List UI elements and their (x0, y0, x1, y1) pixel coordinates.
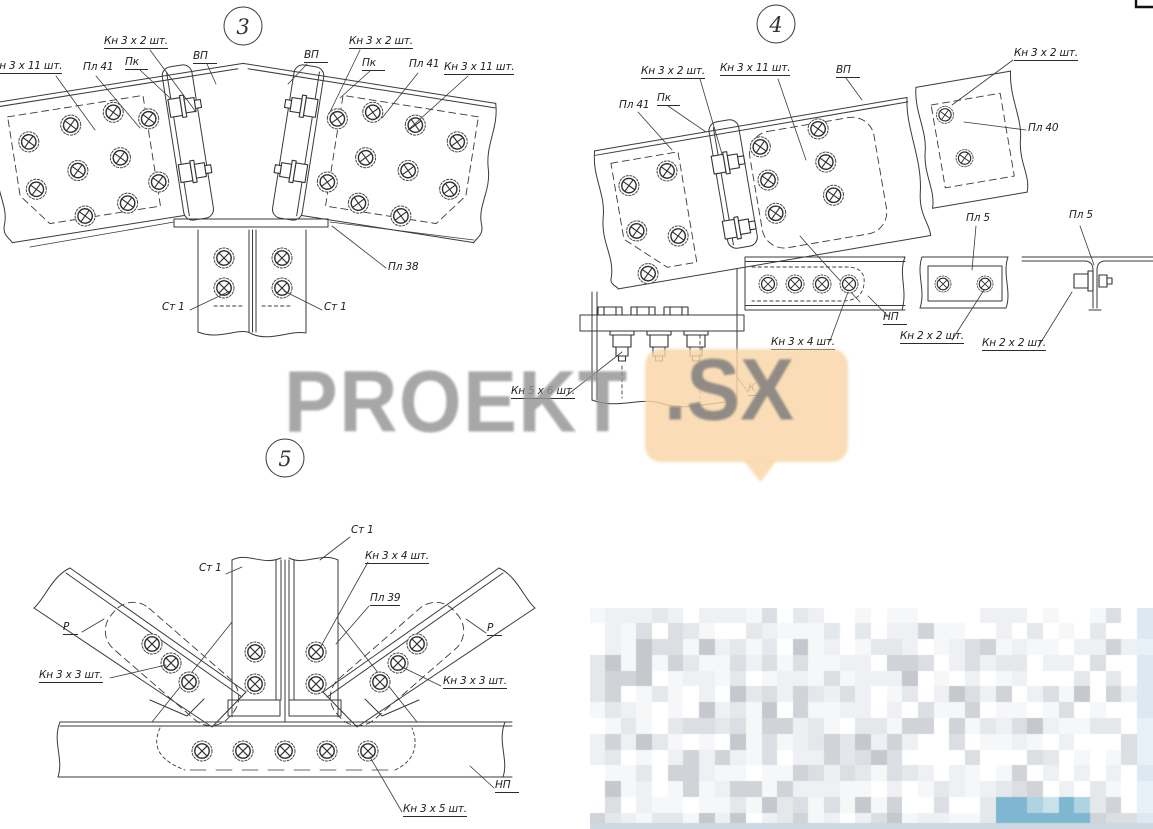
detail-5-view: 5 (34, 439, 535, 777)
detail-4-np-member (745, 236, 905, 310)
callout-kn3x2-right-d4: Кн 3 х 2 шт. (1014, 47, 1078, 61)
callout-kn3x2-right-d3: Кн 3 х 2 шт. (349, 35, 413, 49)
callout-st1-left-d3: Ст 1 (162, 301, 185, 313)
callout-kn3x5-d5: Кн 3 х 5 шт. (403, 803, 467, 817)
svg-text:3: 3 (236, 15, 249, 39)
detail-4-column (580, 269, 744, 407)
callout-pl40-d4: Пл 40 (1028, 122, 1058, 134)
callout-pl5-plate-d4: Пл 5 (966, 212, 990, 224)
drawing-sheet: 3 (0, 0, 1153, 829)
callout-kn3x2-left-d4: Кн 3 х 2 шт. (641, 65, 705, 79)
callout-kn5x6-d4: Кн 5 х 6 шт. (511, 385, 575, 399)
svg-text:4: 4 (768, 13, 782, 37)
detail-4-beam (588, 90, 931, 290)
detail-5-column-stubs (228, 557, 341, 722)
detail-5-left-brace (34, 568, 249, 736)
callout-pl39-d5: Пл 39 (370, 592, 400, 606)
callout-st1-left-d5: Ст 1 (199, 562, 222, 574)
detail-3-right-beam (220, 55, 503, 249)
callout-pl41-right-d3: Пл 41 (409, 58, 439, 70)
callout-r-right-d5: Р (487, 622, 502, 636)
svg-text:5: 5 (278, 447, 291, 471)
detail-4-plate40 (912, 71, 1031, 208)
callout-pk-d4: Пк (657, 92, 680, 106)
callout-kn3x4-d4: Кн 3 х 4 шт. (771, 336, 835, 350)
detail-3-column (30, 219, 474, 337)
detail-4-marker: 4 (757, 5, 795, 43)
callout-kn2x2-tee-d4: Кн 2 х 2 шт. (982, 337, 1046, 351)
callout-st1-right-d3: Ст 1 (324, 301, 347, 313)
callout-kn3x2-left-d3: Кн 3 х 2 шт. (104, 35, 168, 49)
callout-kn3x11-left-d3: Кн 3 х 11 шт. (0, 60, 62, 74)
callout-pl41-d4: Пл 41 (619, 99, 649, 111)
callout-np-d5: НП (495, 779, 519, 793)
callout-pk-left-d3: Пк (125, 56, 148, 70)
detail-4-plate5 (920, 257, 1008, 308)
detail-3-view: 3 (0, 7, 503, 337)
callout-kn3x11-right-d3: Кн 3 х 11 шт. (444, 61, 514, 75)
callout-r-left-d5: Р (63, 621, 78, 635)
detail-3-marker: 3 (224, 7, 262, 45)
detail-5-right-brace (320, 568, 535, 736)
callout-k-d4: К (748, 382, 764, 396)
callout-st1-right-d5: Ст 1 (351, 524, 374, 536)
callout-kn3x11-d4: Кн 3 х 11 шт. (720, 62, 790, 76)
callout-kn3x3-left-d5: Кн 3 х 3 шт. (39, 669, 103, 683)
detail-5-chord (57, 722, 512, 777)
callout-kn3x4-d5: Кн 3 х 4 шт. (365, 550, 429, 564)
censored-title-block (590, 608, 1153, 829)
detail-4-tee (1022, 257, 1153, 310)
callout-np-d4: НП (883, 311, 907, 325)
callout-kn3x3-right-d5: Кн 3 х 3 шт. (443, 675, 507, 689)
callout-pl41-left-d3: Пл 41 (83, 61, 113, 73)
detail-3-left-beam (0, 55, 266, 249)
callout-pl38-d3: Пл 38 (388, 261, 418, 273)
callout-kn2x2-plate-d4: Кн 2 х 2 шт. (900, 330, 964, 344)
callout-pk-right-d3: Пк (362, 57, 385, 71)
callout-vp-right-d3: ВП (304, 49, 328, 63)
callout-pl5-tee-d4: Пл 5 (1069, 209, 1093, 221)
sheet-frame-corner (1136, 0, 1153, 7)
callout-vp-left-d3: ВП (193, 50, 217, 64)
callout-vp-d4: ВП (836, 64, 860, 78)
detail-5-marker: 5 (266, 439, 304, 477)
